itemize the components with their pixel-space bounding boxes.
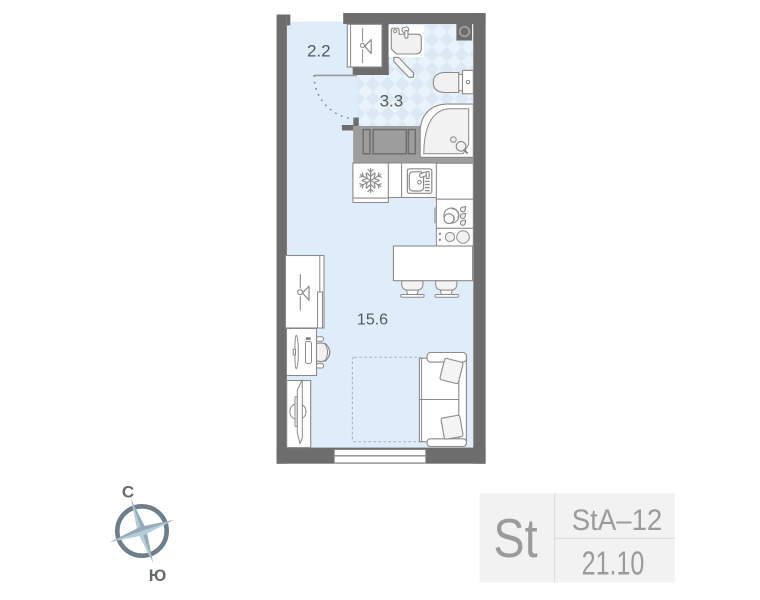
svg-text:С: С xyxy=(122,483,134,502)
svg-text:15.6: 15.6 xyxy=(357,312,388,329)
svg-text:St: St xyxy=(493,507,537,568)
svg-text:StA–12: StA–12 xyxy=(572,504,662,537)
svg-text:3.3: 3.3 xyxy=(380,92,404,111)
svg-text:Ю: Ю xyxy=(149,566,167,585)
svg-text:21.10: 21.10 xyxy=(582,545,645,582)
svg-text:2.2: 2.2 xyxy=(307,42,331,61)
